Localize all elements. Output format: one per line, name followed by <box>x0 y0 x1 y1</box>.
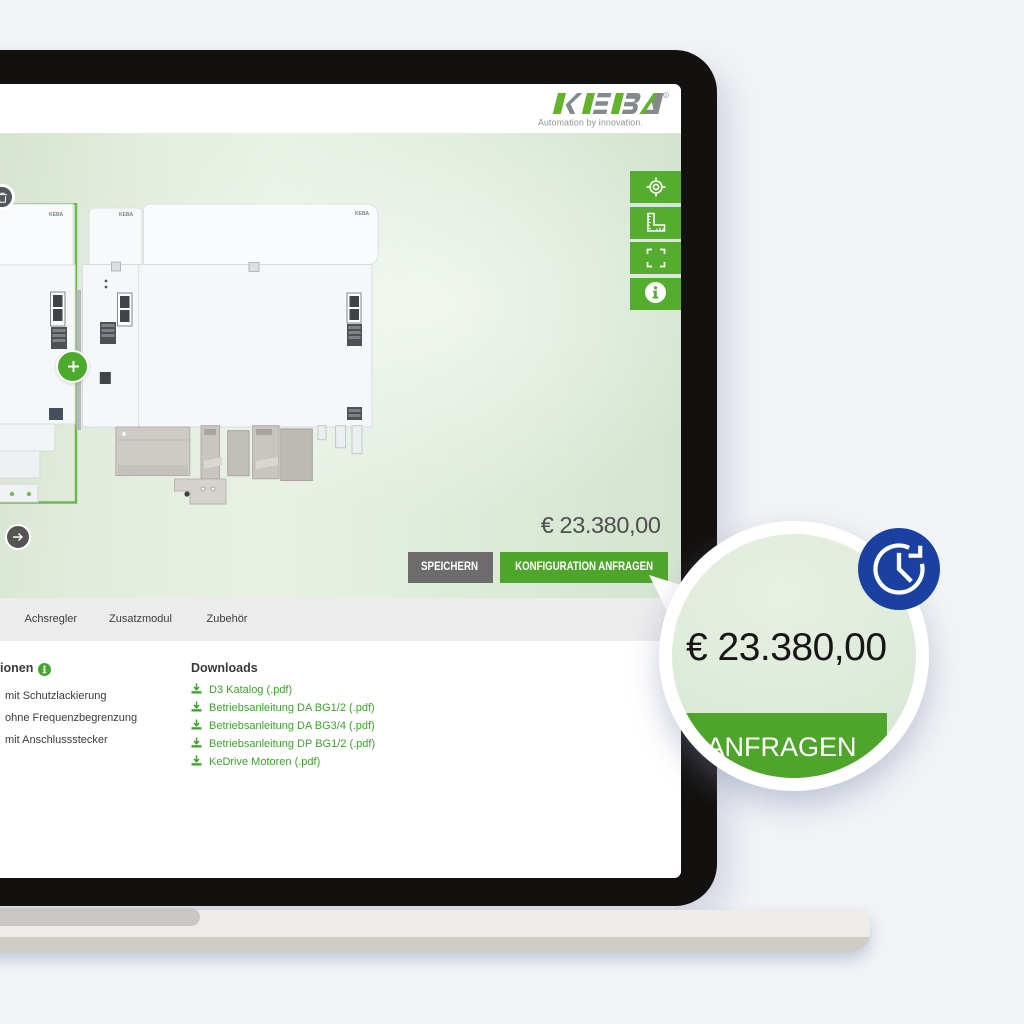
svg-text:Automation by innovation.: Automation by innovation. <box>538 118 643 128</box>
svg-text:KEBA: KEBA <box>355 211 370 217</box>
svg-text:KEBA: KEBA <box>49 212 64 218</box>
svg-text:KEBA: KEBA <box>119 212 134 218</box>
